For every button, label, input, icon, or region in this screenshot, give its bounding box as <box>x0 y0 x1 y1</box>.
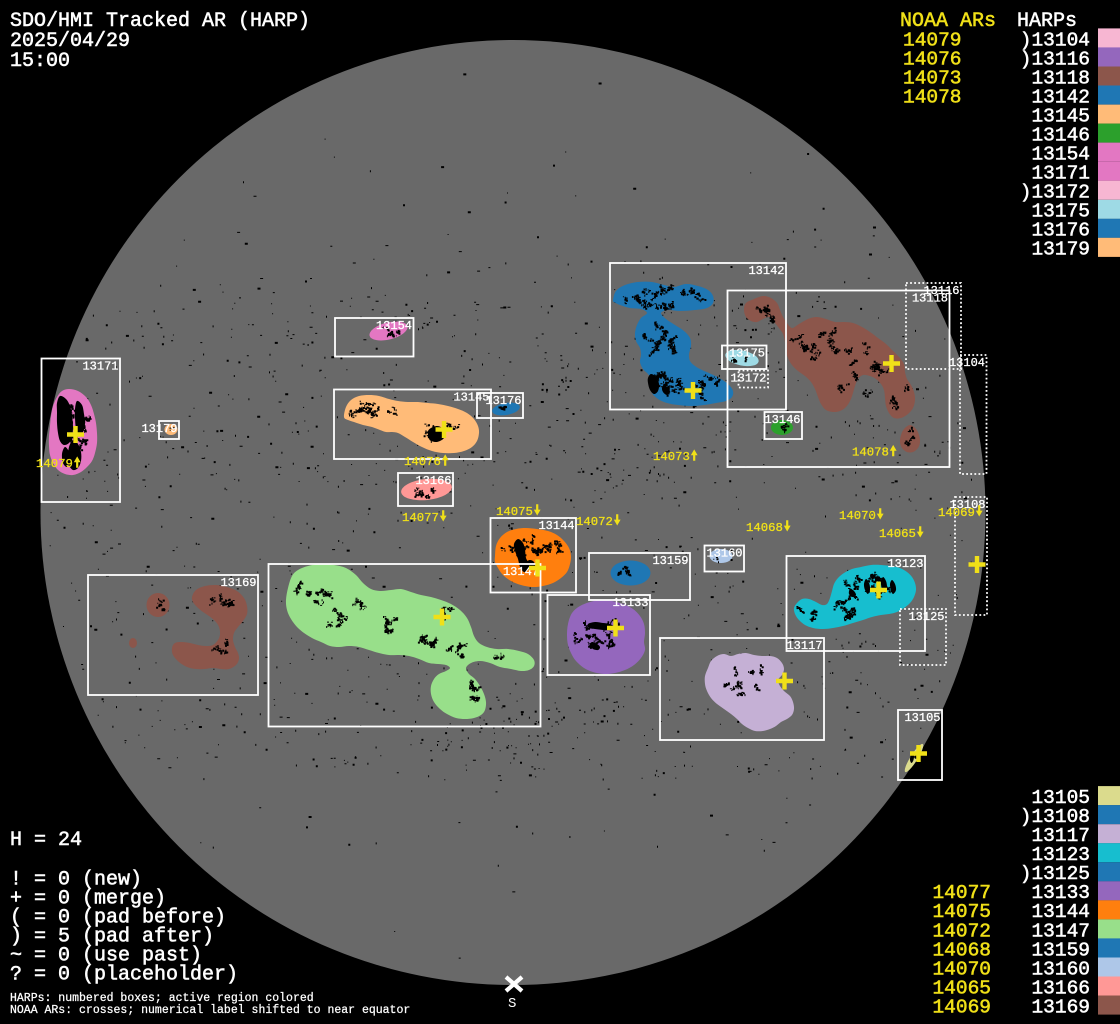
svg-text:S: S <box>508 996 516 1012</box>
svg-text:13144: 13144 <box>538 519 574 533</box>
svg-text:13116: 13116 <box>923 284 959 298</box>
svg-text:14069: 14069 <box>932 996 991 1018</box>
svg-text:13104: 13104 <box>949 356 985 370</box>
svg-text:14073: 14073 <box>653 450 690 464</box>
svg-text:13146: 13146 <box>764 413 800 427</box>
svg-text:14078: 14078 <box>903 86 962 108</box>
svg-text:13154: 13154 <box>376 319 412 333</box>
svg-text:NOAA ARs: crosses; numerical l: NOAA ARs: crosses; numerical label shift… <box>10 1004 410 1017</box>
svg-text:13176: 13176 <box>485 394 521 408</box>
svg-text:14075: 14075 <box>496 505 533 519</box>
svg-text:13133: 13133 <box>612 596 648 610</box>
svg-text:14068: 14068 <box>746 521 783 535</box>
svg-text:H = 24: H = 24 <box>10 829 82 852</box>
svg-text:13169: 13169 <box>220 576 256 590</box>
svg-text:14078: 14078 <box>852 446 889 460</box>
svg-text:14077: 14077 <box>402 511 439 525</box>
svg-text:13105: 13105 <box>904 711 940 725</box>
svg-text:13175: 13175 <box>729 347 765 361</box>
svg-text:13145: 13145 <box>453 391 489 405</box>
svg-text:14079: 14079 <box>36 457 73 471</box>
svg-text:? = 0 (placeholder): ? = 0 (placeholder) <box>10 964 238 987</box>
svg-text:14065: 14065 <box>879 527 916 541</box>
svg-text:13179: 13179 <box>1031 239 1090 261</box>
svg-text:14076: 14076 <box>404 455 441 469</box>
svg-text:13172: 13172 <box>730 372 766 386</box>
svg-text:13171: 13171 <box>82 360 118 374</box>
svg-text:13123: 13123 <box>887 557 923 571</box>
svg-text:15:00: 15:00 <box>10 50 70 73</box>
svg-text:13166: 13166 <box>415 474 451 488</box>
svg-text:13159: 13159 <box>652 554 688 568</box>
svg-text:14070: 14070 <box>839 509 876 523</box>
svg-text:14072: 14072 <box>576 515 613 529</box>
svg-text:13169: 13169 <box>1031 996 1090 1018</box>
svg-text:13142: 13142 <box>748 264 784 278</box>
svg-text:13179: 13179 <box>141 422 177 436</box>
svg-text:13125: 13125 <box>908 610 944 624</box>
svg-text:14069: 14069 <box>938 506 975 520</box>
svg-text:13160: 13160 <box>706 547 742 561</box>
svg-text:13117: 13117 <box>786 639 822 653</box>
